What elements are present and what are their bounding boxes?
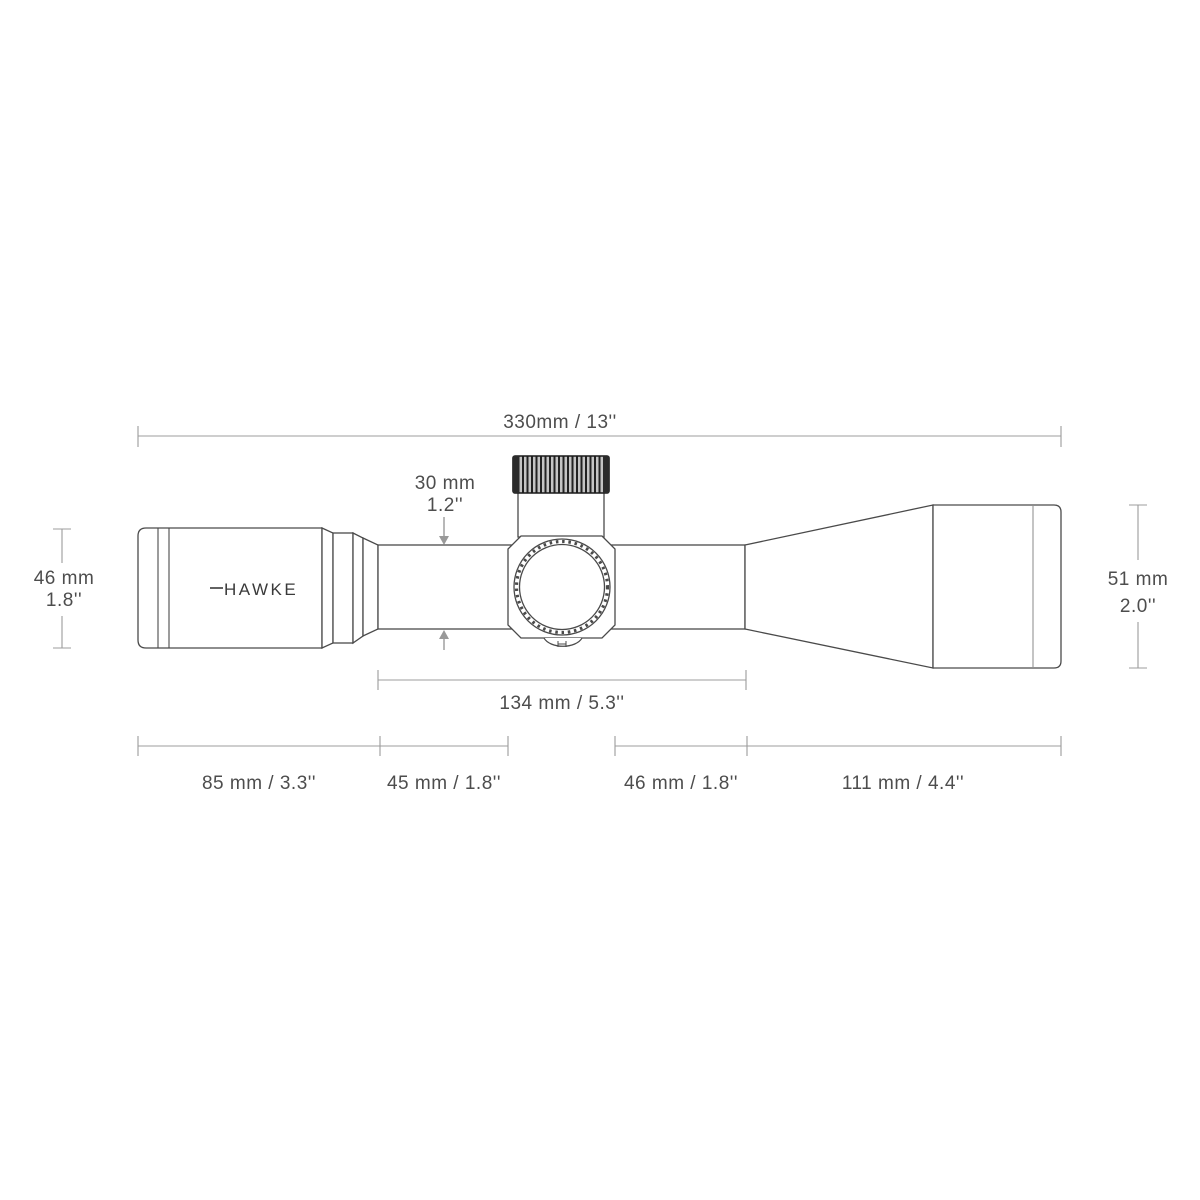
objective-bell-cone — [745, 505, 933, 668]
dim-tube-dia-arrow-up-head — [439, 630, 449, 639]
objective-body — [933, 505, 1061, 668]
zoom-ring-band-1 — [333, 533, 353, 643]
saddle-bottom-cap — [544, 638, 582, 646]
dim-overall-length: 330mm / 13'' — [138, 412, 1061, 447]
dim-eyepiece-length-label: 85 mm / 3.3'' — [202, 773, 316, 794]
side-focus-wheel-inner — [520, 545, 605, 630]
zoom-ring-chamfer-rear — [322, 528, 333, 648]
zoom-ring-taper — [363, 538, 378, 636]
dim-eyepiece-dia-label-1: 46 mm — [34, 568, 95, 589]
dim-mounting-label: 134 mm / 5.3'' — [499, 693, 624, 714]
dim-objective-dia-label-1: 51 mm — [1108, 569, 1169, 590]
diagram-svg: HAWKE 330mm / 13'' 46 mm 1.8'' 51 mm — [0, 0, 1200, 1200]
dim-objective-dia-label-2: 2.0'' — [1120, 596, 1156, 617]
elevation-turret-stem — [518, 492, 604, 537]
elevation-turret-cap — [513, 456, 609, 493]
scope-outline: HAWKE — [138, 456, 1061, 668]
dim-objective-diameter: 51 mm 2.0'' — [1108, 505, 1169, 668]
dim-overall-label: 330mm / 13'' — [503, 412, 617, 433]
brand-logo: HAWKE — [210, 580, 298, 599]
dim-tube-dia-arrow-down-head — [439, 536, 449, 545]
dim-mounting-length: 134 mm / 5.3'' — [378, 670, 746, 714]
dim-tube-dia-label-2: 1.2'' — [427, 495, 463, 516]
dim-eyepiece-dia-label-2: 1.8'' — [46, 590, 82, 611]
elevation-turret-cap-left-shade — [513, 456, 519, 493]
dim-bottom-sections: 85 mm / 3.3'' 45 mm / 1.8'' 46 mm / 1.8'… — [138, 736, 1061, 794]
dim-tube-dia-label-1: 30 mm — [415, 473, 476, 494]
brand-logo-text: HAWKE — [224, 580, 298, 599]
dim-front-tube-length-label: 46 mm / 1.8'' — [624, 773, 738, 794]
dim-rear-tube-length-label: 45 mm / 1.8'' — [387, 773, 501, 794]
dim-objective-length-label: 111 mm / 4.4'' — [842, 773, 964, 794]
zoom-ring-band-2 — [353, 533, 363, 643]
scope-dimensions-diagram: HAWKE 330mm / 13'' 46 mm 1.8'' 51 mm — [0, 0, 1200, 1200]
elevation-turret-cap-right-shade — [603, 456, 609, 493]
dim-eyepiece-diameter: 46 mm 1.8'' — [34, 529, 95, 648]
